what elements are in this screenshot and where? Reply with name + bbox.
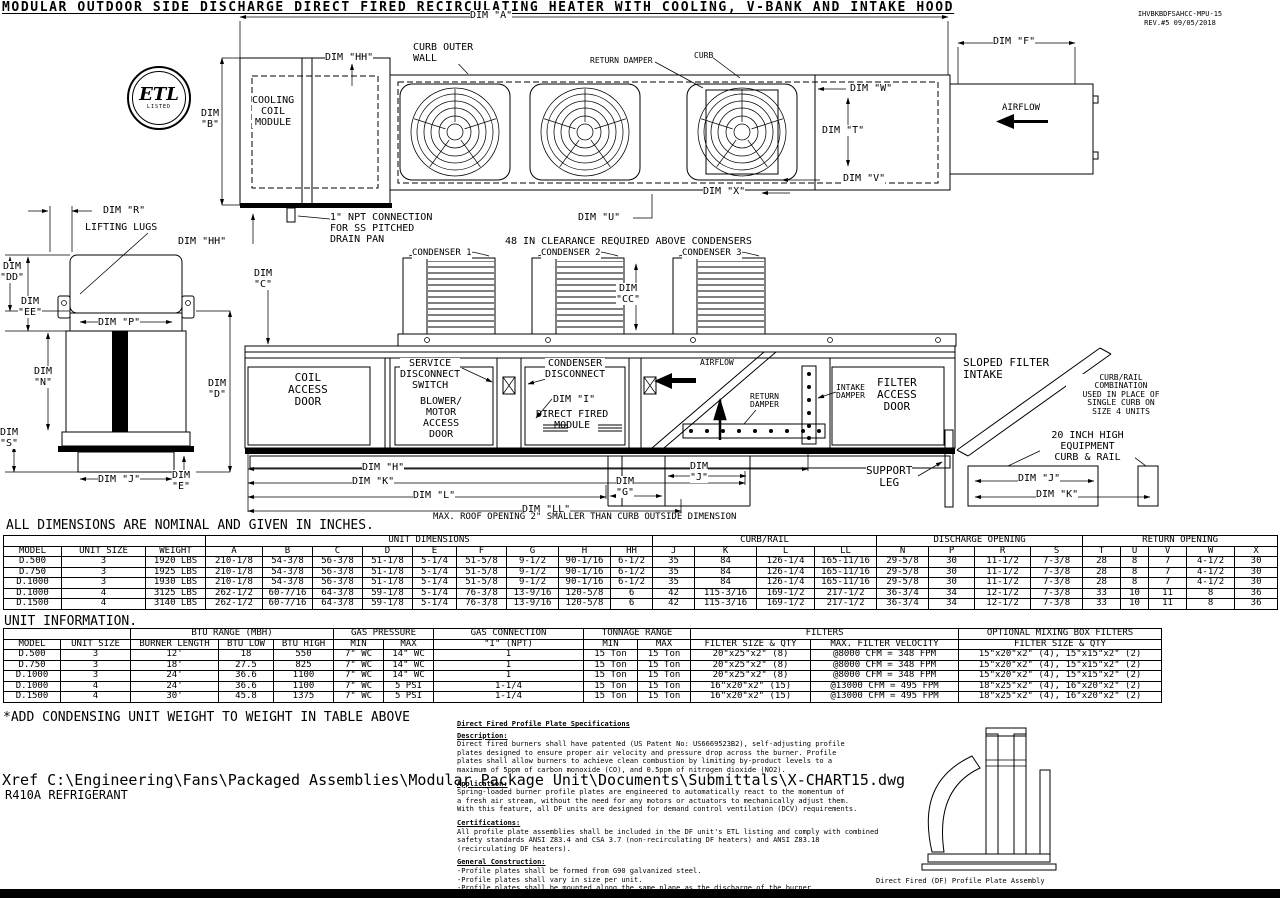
table-cell: 30 (1235, 557, 1278, 568)
table-cell: 1-1/4 (434, 681, 584, 692)
table-cell: 45.8 (219, 692, 274, 703)
table-cell: 51-1/8 (363, 578, 413, 589)
table-cell: D.1000 (4, 588, 62, 599)
col-header: BTU HIGH (274, 639, 334, 650)
table-cell: 18"x25"x2" (4), 16"x20"x2" (2) (959, 692, 1162, 703)
table-cell: 20"x25"x2" (8) (691, 671, 811, 682)
table-cell: 35 (653, 567, 695, 578)
spec-section-label: Description: (457, 732, 909, 741)
table-cell: 54-3/8 (263, 578, 313, 589)
col-header: MIN (334, 639, 384, 650)
group-tonnage-range: TONNAGE RANGE (584, 629, 691, 640)
table-row: D.50031920 LBS210-1/854-3/856-3/851-1/85… (4, 557, 1278, 568)
refrigerant-note: R410A REFRIGERANT (5, 789, 128, 802)
table-cell: 11 (1149, 588, 1187, 599)
col-header: FILTER SIZE & QTY (959, 639, 1162, 650)
table-cell: 76-3/8 (457, 599, 507, 610)
table-cell: 30 (929, 578, 975, 589)
condenser-1-label: CONDENSER 1 (412, 249, 472, 259)
table-cell: 15 Ton (584, 650, 638, 661)
etl-mark-text: ETL (139, 86, 179, 104)
table-cell: 4 (62, 599, 146, 610)
table-cell: 36.6 (219, 671, 274, 682)
table-cell: 1 (434, 650, 584, 661)
table-cell: 29-5/8 (877, 557, 929, 568)
return-damper-mid-label: RETURN DAMPER (750, 393, 779, 410)
table-cell: 3 (61, 660, 131, 671)
table-row: D.750318'27.58257" WC14" WC115 Ton15 Ton… (4, 660, 1162, 671)
coil-access-door-label: COIL ACCESS DOOR (288, 372, 328, 408)
table-cell: D.1000 (4, 578, 62, 589)
table-cell: 1925 LBS (146, 567, 206, 578)
table-cell: 24' (131, 681, 219, 692)
table-cell: 7-3/8 (1031, 567, 1083, 578)
curb-rail-combination-note: CURB/RAIL COMBINATION USED IN PLACE OF S… (1066, 374, 1176, 416)
table-cell: 42 (653, 588, 695, 599)
table-cell: D.500 (4, 650, 61, 661)
table-cell: 4-1/2 (1187, 578, 1235, 589)
table-cell: 9-1/2 (507, 567, 559, 578)
condensing-weight-note: *ADD CONDENSING UNIT WEIGHT TO WEIGHT IN… (3, 711, 410, 725)
dim-hh-mid-label: DIM "HH" (178, 236, 226, 247)
table-cell: 90-1/16 (559, 578, 611, 589)
table-cell: 4 (61, 681, 131, 692)
table-cell: 1920 LBS (146, 557, 206, 568)
spec-section: General Construction:-Profile plates sha… (457, 858, 909, 898)
dim-a-label: DIM "A" (470, 10, 512, 21)
table-cell: 12-1/2 (975, 588, 1031, 599)
table-cell: 9-1/2 (507, 578, 559, 589)
table-cell: 1930 LBS (146, 578, 206, 589)
table-cell: 29-5/8 (877, 578, 929, 589)
table-cell: 5-1/4 (413, 567, 457, 578)
dim-k-right-label: DIM "K" (1036, 489, 1078, 500)
table-cell: 15 Ton (584, 692, 638, 703)
table-cell: 20"x25"x2" (8) (691, 660, 811, 671)
group-btu-range: BTU RANGE (MBH) (131, 629, 334, 640)
unit-dimensions-table: UNIT DIMENSIONS CURB/RAIL DISCHARGE OPEN… (3, 535, 1278, 610)
table-cell: 35 (653, 578, 695, 589)
dim-f-label: DIM "F" (993, 36, 1035, 47)
table-cell: 11-1/2 (975, 567, 1031, 578)
table-cell: @8000 CFM = 348 FPM (811, 671, 959, 682)
table-cell: 18 (219, 650, 274, 661)
table-corner (4, 629, 131, 640)
table-cell: 27.5 (219, 660, 274, 671)
table-cell: 56-3/8 (313, 578, 363, 589)
table-cell: 11-1/2 (975, 578, 1031, 589)
table-cell: 1100 (274, 671, 334, 682)
col-header: A (206, 546, 263, 557)
table-cell: 8 (1121, 578, 1149, 589)
table-cell: 1 (434, 660, 584, 671)
table-cell: 13-9/16 (507, 599, 559, 610)
table-cell: 169-1/2 (757, 588, 815, 599)
dim-dd-label: DIM "DD" (0, 261, 24, 283)
table-cell: 51-1/8 (363, 557, 413, 568)
etl-listed-text: LISTED (147, 104, 171, 110)
table-cell: 7" WC (334, 681, 384, 692)
table-cell: 29-5/8 (877, 567, 929, 578)
profile-plate-assembly-drawing (880, 718, 1120, 883)
xref-path: Xref C:\Engineering\Fans\Packaged Assemb… (2, 772, 905, 789)
table-cell: 7" WC (334, 660, 384, 671)
dim-t-label: DIM "T" (822, 125, 864, 136)
table-cell: 13-9/16 (507, 588, 559, 599)
table-cell: 6-1/2 (611, 557, 653, 568)
table-cell: 3 (61, 650, 131, 661)
col-header: MIN (584, 639, 638, 650)
table-cell: 10 (1121, 599, 1149, 610)
table-cell: 115-3/16 (695, 588, 757, 599)
table-cell: 30 (1235, 578, 1278, 589)
table-cell: 60-7/16 (263, 599, 313, 610)
col-header: G (507, 546, 559, 557)
dim-j-right-label: DIM "J" (1018, 473, 1060, 484)
condenser-2-label: CONDENSER 2 (541, 249, 601, 259)
table-cell: 51-5/8 (457, 567, 507, 578)
table-cell: 6 (611, 599, 653, 610)
dim-l-label: DIM "L" (413, 490, 455, 501)
table-cell: 16"x20"x2" (15) (691, 692, 811, 703)
table-cell: 64-3/8 (313, 599, 363, 610)
dim-n-label: DIM "N" (34, 366, 52, 388)
table-header-row: MODEL UNIT SIZE WEIGHT A B C D E F G H H… (4, 546, 1278, 557)
table-group-header-row: BTU RANGE (MBH) GAS PRESSURE GAS CONNECT… (4, 629, 1162, 640)
table-cell: 34 (929, 599, 975, 610)
table-cell: 5-1/4 (413, 599, 457, 610)
table-cell: 36.6 (219, 681, 274, 692)
col-header: HH (611, 546, 653, 557)
table-cell: 6-1/2 (611, 578, 653, 589)
table-cell: 36 (1235, 588, 1278, 599)
col-header: MODEL (4, 546, 62, 557)
table-cell: 120-5/8 (559, 599, 611, 610)
table-cell: 90-1/16 (559, 557, 611, 568)
table-cell: 15 Ton (638, 681, 691, 692)
group-return-opening: RETURN OPENING (1083, 536, 1278, 547)
curb-outer-wall-label: CURB OUTER WALL (413, 42, 473, 64)
table-cell: 30 (1235, 567, 1278, 578)
table-cell: @13000 CFM = 495 FPM (811, 681, 959, 692)
cooling-coil-module-label: COOLING COIL MODULE (252, 95, 294, 128)
curb-top-label: CURB (694, 52, 713, 60)
dim-j-left-label: DIM "J" (98, 474, 140, 485)
table-cell: D.500 (4, 557, 62, 568)
table-cell: 3140 LBS (146, 599, 206, 610)
table-cell: 165-11/16 (815, 567, 877, 578)
col-header: W (1187, 546, 1235, 557)
table-cell: 3 (62, 567, 146, 578)
unit-information-table: BTU RANGE (MBH) GAS PRESSURE GAS CONNECT… (3, 628, 1162, 703)
spec-section-body: All profile plate assemblies shall be in… (457, 828, 909, 854)
table-row: D.1500430'45.813757" WC5 PSI1-1/415 Ton1… (4, 692, 1162, 703)
condenser-3-label: CONDENSER 3 (682, 249, 742, 259)
dim-g-label: DIM "G" (616, 476, 634, 498)
col-header: BTU LOW (219, 639, 274, 650)
table-cell: @8000 CFM = 348 FPM (811, 650, 959, 661)
filter-access-door-label: FILTER ACCESS DOOR (877, 377, 917, 413)
sloped-filter-intake-label: SLOPED FILTER INTAKE (963, 357, 1049, 381)
service-disconnect-label: SERVICE DISCONNECT SWITCH (400, 358, 460, 391)
table-cell: 12-1/2 (975, 599, 1031, 610)
table-cell: 24' (131, 671, 219, 682)
table-row: D.75031925 LBS210-1/854-3/856-3/851-1/85… (4, 567, 1278, 578)
return-damper-top-label: RETURN DAMPER (590, 57, 653, 65)
table-header-row: MODEL UNIT SIZE BURNER LENGTH BTU LOW BT… (4, 639, 1162, 650)
dim-i-label: DIM "I" (553, 394, 595, 405)
col-header: J (653, 546, 695, 557)
table-cell: 9-1/2 (507, 557, 559, 568)
table-cell: 4-1/2 (1187, 557, 1235, 568)
table-cell: 7 (1149, 567, 1187, 578)
table-cell: 30' (131, 692, 219, 703)
table-cell: 14" WC (384, 660, 434, 671)
col-header: MAX. FILTER VELOCITY (811, 639, 959, 650)
table-group-header-row: UNIT DIMENSIONS CURB/RAIL DISCHARGE OPEN… (4, 536, 1278, 547)
table-cell: 15 Ton (584, 681, 638, 692)
table-cell: 15 Ton (584, 660, 638, 671)
group-filters: FILTERS (691, 629, 959, 640)
table-cell: 3125 LBS (146, 588, 206, 599)
table-cell: 28 (1083, 557, 1121, 568)
table-cell: 7 (1149, 557, 1187, 568)
table-cell: 120-5/8 (559, 588, 611, 599)
col-header: UNIT SIZE (62, 546, 146, 557)
table-cell: 36 (1235, 599, 1278, 610)
dim-x-label: DIM "X" (703, 186, 745, 197)
col-header: D (363, 546, 413, 557)
table-cell: 14" WC (384, 650, 434, 661)
table-row: D.100043125 LBS262-1/260-7/1664-3/859-1/… (4, 588, 1278, 599)
group-gas-pressure: GAS PRESSURE (334, 629, 434, 640)
table-cell: 35 (653, 557, 695, 568)
intake-damper-label: INTAKE DAMPER (836, 384, 865, 401)
table-cell: 30 (929, 567, 975, 578)
table-cell: 210-1/8 (206, 567, 263, 578)
table-row: D.100031930 LBS210-1/854-3/856-3/851-1/8… (4, 578, 1278, 589)
table-cell: 7" WC (334, 692, 384, 703)
table-cell: 126-1/4 (757, 567, 815, 578)
table-cell: 4 (62, 588, 146, 599)
table-row: D.150043140 LBS262-1/260-7/1664-3/859-1/… (4, 599, 1278, 610)
table-cell: 115-3/16 (695, 599, 757, 610)
table-cell: 11 (1149, 599, 1187, 610)
table-cell: D.1000 (4, 681, 61, 692)
table-cell: 76-3/8 (457, 588, 507, 599)
dim-cc-label: DIM "CC" (616, 283, 640, 305)
dim-b-label: DIM "B" (201, 108, 219, 130)
table-cell: 217-1/2 (815, 588, 877, 599)
table-cell: 8 (1187, 599, 1235, 610)
table-cell: 1 (434, 671, 584, 682)
table-cell: 18' (131, 660, 219, 671)
dim-c-label: DIM "C" (254, 268, 272, 290)
spec-section-body: -Profile plates shall be formed from G90… (457, 867, 909, 898)
table-cell: 8 (1121, 557, 1149, 568)
table-cell: 7-3/8 (1031, 557, 1083, 568)
dim-r-label: DIM "R" (103, 205, 145, 216)
airflow-mid-label: AIRFLOW (700, 359, 734, 367)
table-cell: 34 (929, 588, 975, 599)
blower-motor-access-label: BLOWER/ MOTOR ACCESS DOOR (420, 396, 462, 440)
dim-p-label: DIM "P" (98, 317, 140, 328)
table-cell: 6-1/2 (611, 567, 653, 578)
table-cell: 59-1/8 (363, 599, 413, 610)
table-cell: 28 (1083, 567, 1121, 578)
table-cell: 54-3/8 (263, 557, 313, 568)
dim-ee-label: DIM "EE" (18, 296, 42, 318)
table-cell: 5-1/4 (413, 578, 457, 589)
table-cell: 64-3/8 (313, 588, 363, 599)
table-cell: 15 Ton (638, 660, 691, 671)
table-cell: 126-1/4 (757, 578, 815, 589)
table-cell: 15"x20"x2" (4), 15"x15"x2" (2) (959, 660, 1162, 671)
table-row: D.1000324'36.611007" WC14" WC115 Ton15 T… (4, 671, 1162, 682)
table-cell: 8 (1121, 567, 1149, 578)
table-cell: D.1000 (4, 671, 61, 682)
table-cell: 3 (62, 578, 146, 589)
table-cell: 60-7/16 (263, 588, 313, 599)
table-cell: 7" WC (334, 671, 384, 682)
spec-section-body: Direct fired burners shall have patented… (457, 740, 909, 774)
table-cell: 28 (1083, 578, 1121, 589)
table-cell: 6 (611, 588, 653, 599)
col-header: B (263, 546, 313, 557)
col-header: S (1031, 546, 1083, 557)
table-cell: 169-1/2 (757, 599, 815, 610)
col-header: L (757, 546, 815, 557)
col-header: N (877, 546, 929, 557)
spec-sections: Description:Direct fired burners shall h… (457, 732, 909, 898)
etl-inner-circle: ETL LISTED (132, 71, 186, 125)
table-cell: 10 (1121, 588, 1149, 599)
group-mixing-box: OPTIONAL MIXING BOX FILTERS (959, 629, 1162, 640)
group-curb-rail: CURB/RAIL (653, 536, 877, 547)
table-cell: 5-1/4 (413, 588, 457, 599)
table-cell: 18"x25"x2" (4), 16"x20"x2" (2) (959, 681, 1162, 692)
col-header: P (929, 546, 975, 557)
dim-k-bottom-label: DIM "K" (352, 476, 394, 487)
condenser-disconnect-label: CONDENSER DISCONNECT (545, 358, 605, 380)
col-header: T (1083, 546, 1121, 557)
dim-w-label: DIM "W" (850, 83, 892, 94)
table-cell: 1100 (274, 681, 334, 692)
table-cell: 3 (61, 671, 131, 682)
table-cell: 7-3/8 (1031, 588, 1083, 599)
table-cell: 165-11/16 (815, 557, 877, 568)
col-header: V (1149, 546, 1187, 557)
equipment-curb-note: 20 INCH HIGH EQUIPMENT CURB & RAIL (1040, 430, 1135, 463)
spec-section-label: Certifications: (457, 819, 909, 828)
table-cell: 51-1/8 (363, 567, 413, 578)
dim-hh-top-label: DIM "HH" (325, 52, 373, 63)
group-unit-dimensions: UNIT DIMENSIONS (206, 536, 653, 547)
etl-listed-mark: ETL LISTED (127, 66, 191, 130)
group-discharge-opening: DISCHARGE OPENING (877, 536, 1083, 547)
table-cell: 51-5/8 (457, 557, 507, 568)
table-cell: 210-1/8 (206, 578, 263, 589)
unit-information-heading: UNIT INFORMATION. (4, 615, 137, 629)
group-gas-connection: GAS CONNECTION (434, 629, 584, 640)
npt-connection-note: 1" NPT CONNECTION FOR SS PITCHED DRAIN P… (330, 212, 432, 245)
table-cell: 54-3/8 (263, 567, 313, 578)
table-cell: D.750 (4, 567, 62, 578)
airflow-top-label: AIRFLOW (1002, 104, 1040, 114)
table-cell: 7-3/8 (1031, 599, 1083, 610)
table-cell: 262-1/2 (206, 588, 263, 599)
table-cell: 15 Ton (638, 650, 691, 661)
table-cell: @8000 CFM = 348 FPM (811, 660, 959, 671)
table-cell: 550 (274, 650, 334, 661)
table-cell: 56-3/8 (313, 557, 363, 568)
col-header: X (1235, 546, 1278, 557)
col-header: R (975, 546, 1031, 557)
table-cell: 217-1/2 (815, 599, 877, 610)
col-header: FILTER SIZE & QTY (691, 639, 811, 650)
col-header: LL (815, 546, 877, 557)
table-cell: D.1500 (4, 599, 62, 610)
table-cell: @13000 CFM = 495 FPM (811, 692, 959, 703)
spec-section-body: Spring-loaded burner profile plates are … (457, 788, 909, 814)
table-cell: 5-1/4 (413, 557, 457, 568)
table-cell: D.1500 (4, 692, 61, 703)
dim-e-label: DIM "E" (172, 470, 190, 492)
table-cell: 262-1/2 (206, 599, 263, 610)
dim-v-label: DIM "V" (843, 173, 885, 184)
table-cell: 7" WC (334, 650, 384, 661)
table-cell: 1-1/4 (434, 692, 584, 703)
col-header: MAX (384, 639, 434, 650)
col-header: MAX (638, 639, 691, 650)
col-header: WEIGHT (146, 546, 206, 557)
table-row: D.500312'185507" WC14" WC115 Ton15 Ton20… (4, 650, 1162, 661)
table-cell: 14" WC (384, 671, 434, 682)
table-cell: 165-11/16 (815, 578, 877, 589)
table-cell: 5 PSI (384, 692, 434, 703)
dim-h-label: DIM "H" (362, 462, 404, 473)
table-cell: 1375 (274, 692, 334, 703)
table-cell: 30 (929, 557, 975, 568)
table-cell: 210-1/8 (206, 557, 263, 568)
col-header: MODEL (4, 639, 61, 650)
table-cell: 3 (62, 557, 146, 568)
table-cell: 5 PSI (384, 681, 434, 692)
col-header: BURNER LENGTH (131, 639, 219, 650)
table-cell: 8 (1187, 588, 1235, 599)
profile-plate-specifications: Direct Fired Profile Plate Specification… (457, 720, 909, 898)
col-header: E (413, 546, 457, 557)
drawing-sheet: MODULAR OUTDOOR SIDE DISCHARGE DIRECT FI… (0, 0, 1280, 898)
spec-section: Description:Direct fired burners shall h… (457, 732, 909, 775)
table-cell: 36-3/4 (877, 588, 929, 599)
table-cell: 15 Ton (584, 671, 638, 682)
dim-s-label: DIM "S" (0, 427, 18, 449)
table-cell: D.750 (4, 660, 61, 671)
table-cell: 825 (274, 660, 334, 671)
table-cell: 4 (61, 692, 131, 703)
table-cell: 51-5/8 (457, 578, 507, 589)
table-cell: 33 (1083, 599, 1121, 610)
clearance-note: 48 IN CLEARANCE REQUIRED ABOVE CONDENSER… (505, 236, 752, 247)
table-cell: 126-1/4 (757, 557, 815, 568)
table-cell: 7 (1149, 578, 1187, 589)
table-cell: 12' (131, 650, 219, 661)
table-cell: 15 Ton (638, 692, 691, 703)
max-roof-opening-note: MAX. ROOF OPENING 2" SMALLER THAN CURB O… (433, 513, 736, 523)
col-header: U (1121, 546, 1149, 557)
table-cell: 11-1/2 (975, 557, 1031, 568)
